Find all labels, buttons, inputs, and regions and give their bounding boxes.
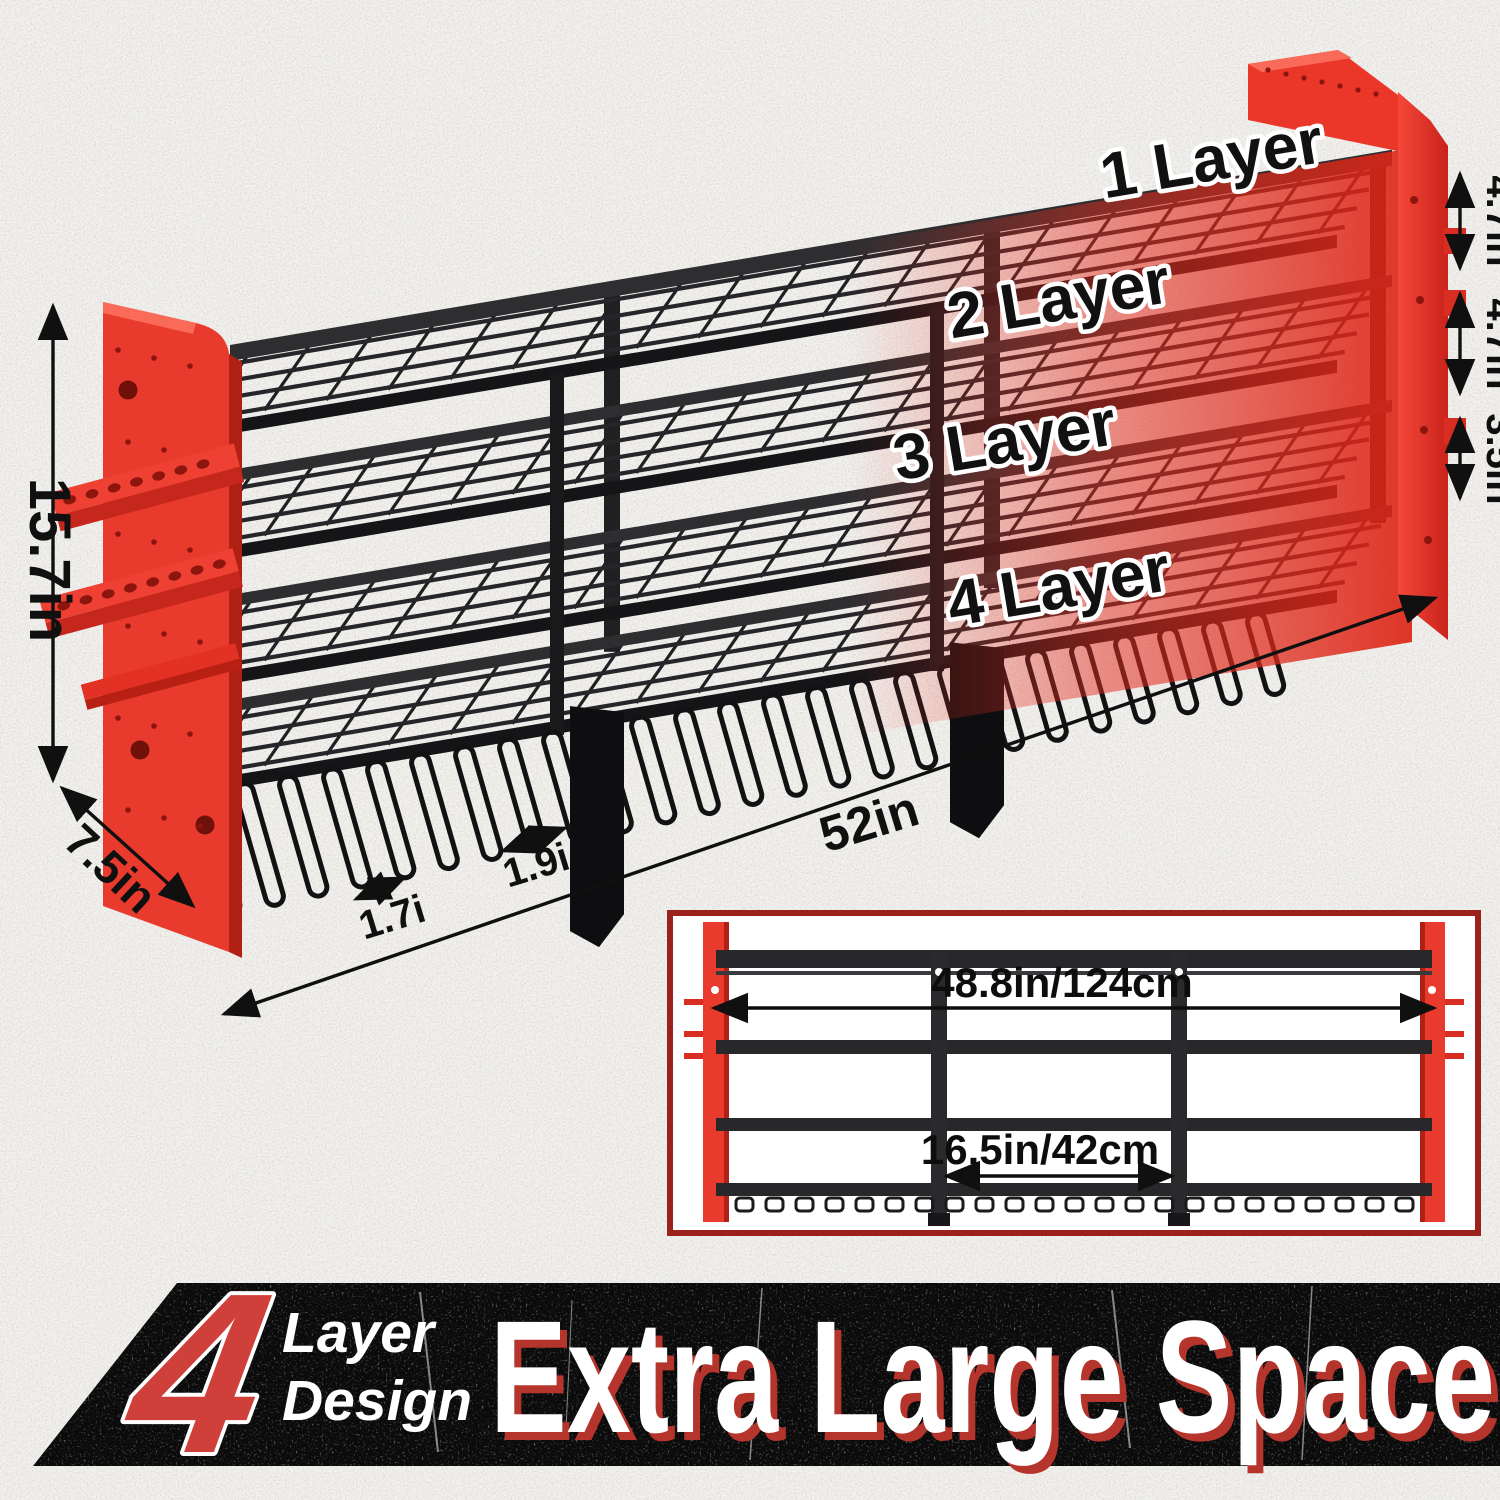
banner-subtitle-line1: Layer — [282, 1301, 437, 1365]
gap-top-label: 4.7in — [1478, 175, 1500, 266]
gap-bottom-label: 3.5in — [1478, 413, 1500, 504]
height-label: 15.7in — [17, 478, 82, 642]
bottom-banner: 4 Layer Design Extra Large Space Extra L… — [0, 1246, 1500, 1500]
banner-subtitle-line2: Design — [282, 1369, 472, 1433]
banner-headline: Extra Large Space — [490, 1287, 1495, 1466]
product-image: 1 Layer 2 Layer 3 Layer 4 Layer 4.7in 4.… — [0, 0, 1500, 1500]
gap-mid-label: 4.7in — [1478, 298, 1500, 389]
inset-front-view: 48.8in/124cm 16.5in/42cm — [670, 913, 1478, 1233]
inset-overall-label: 48.8in/124cm — [931, 959, 1193, 1006]
inset-center-label: 16.5in/42cm — [921, 1126, 1159, 1173]
product-infographic: 1 Layer 2 Layer 3 Layer 4 Layer 4.7in 4.… — [0, 0, 1500, 1500]
